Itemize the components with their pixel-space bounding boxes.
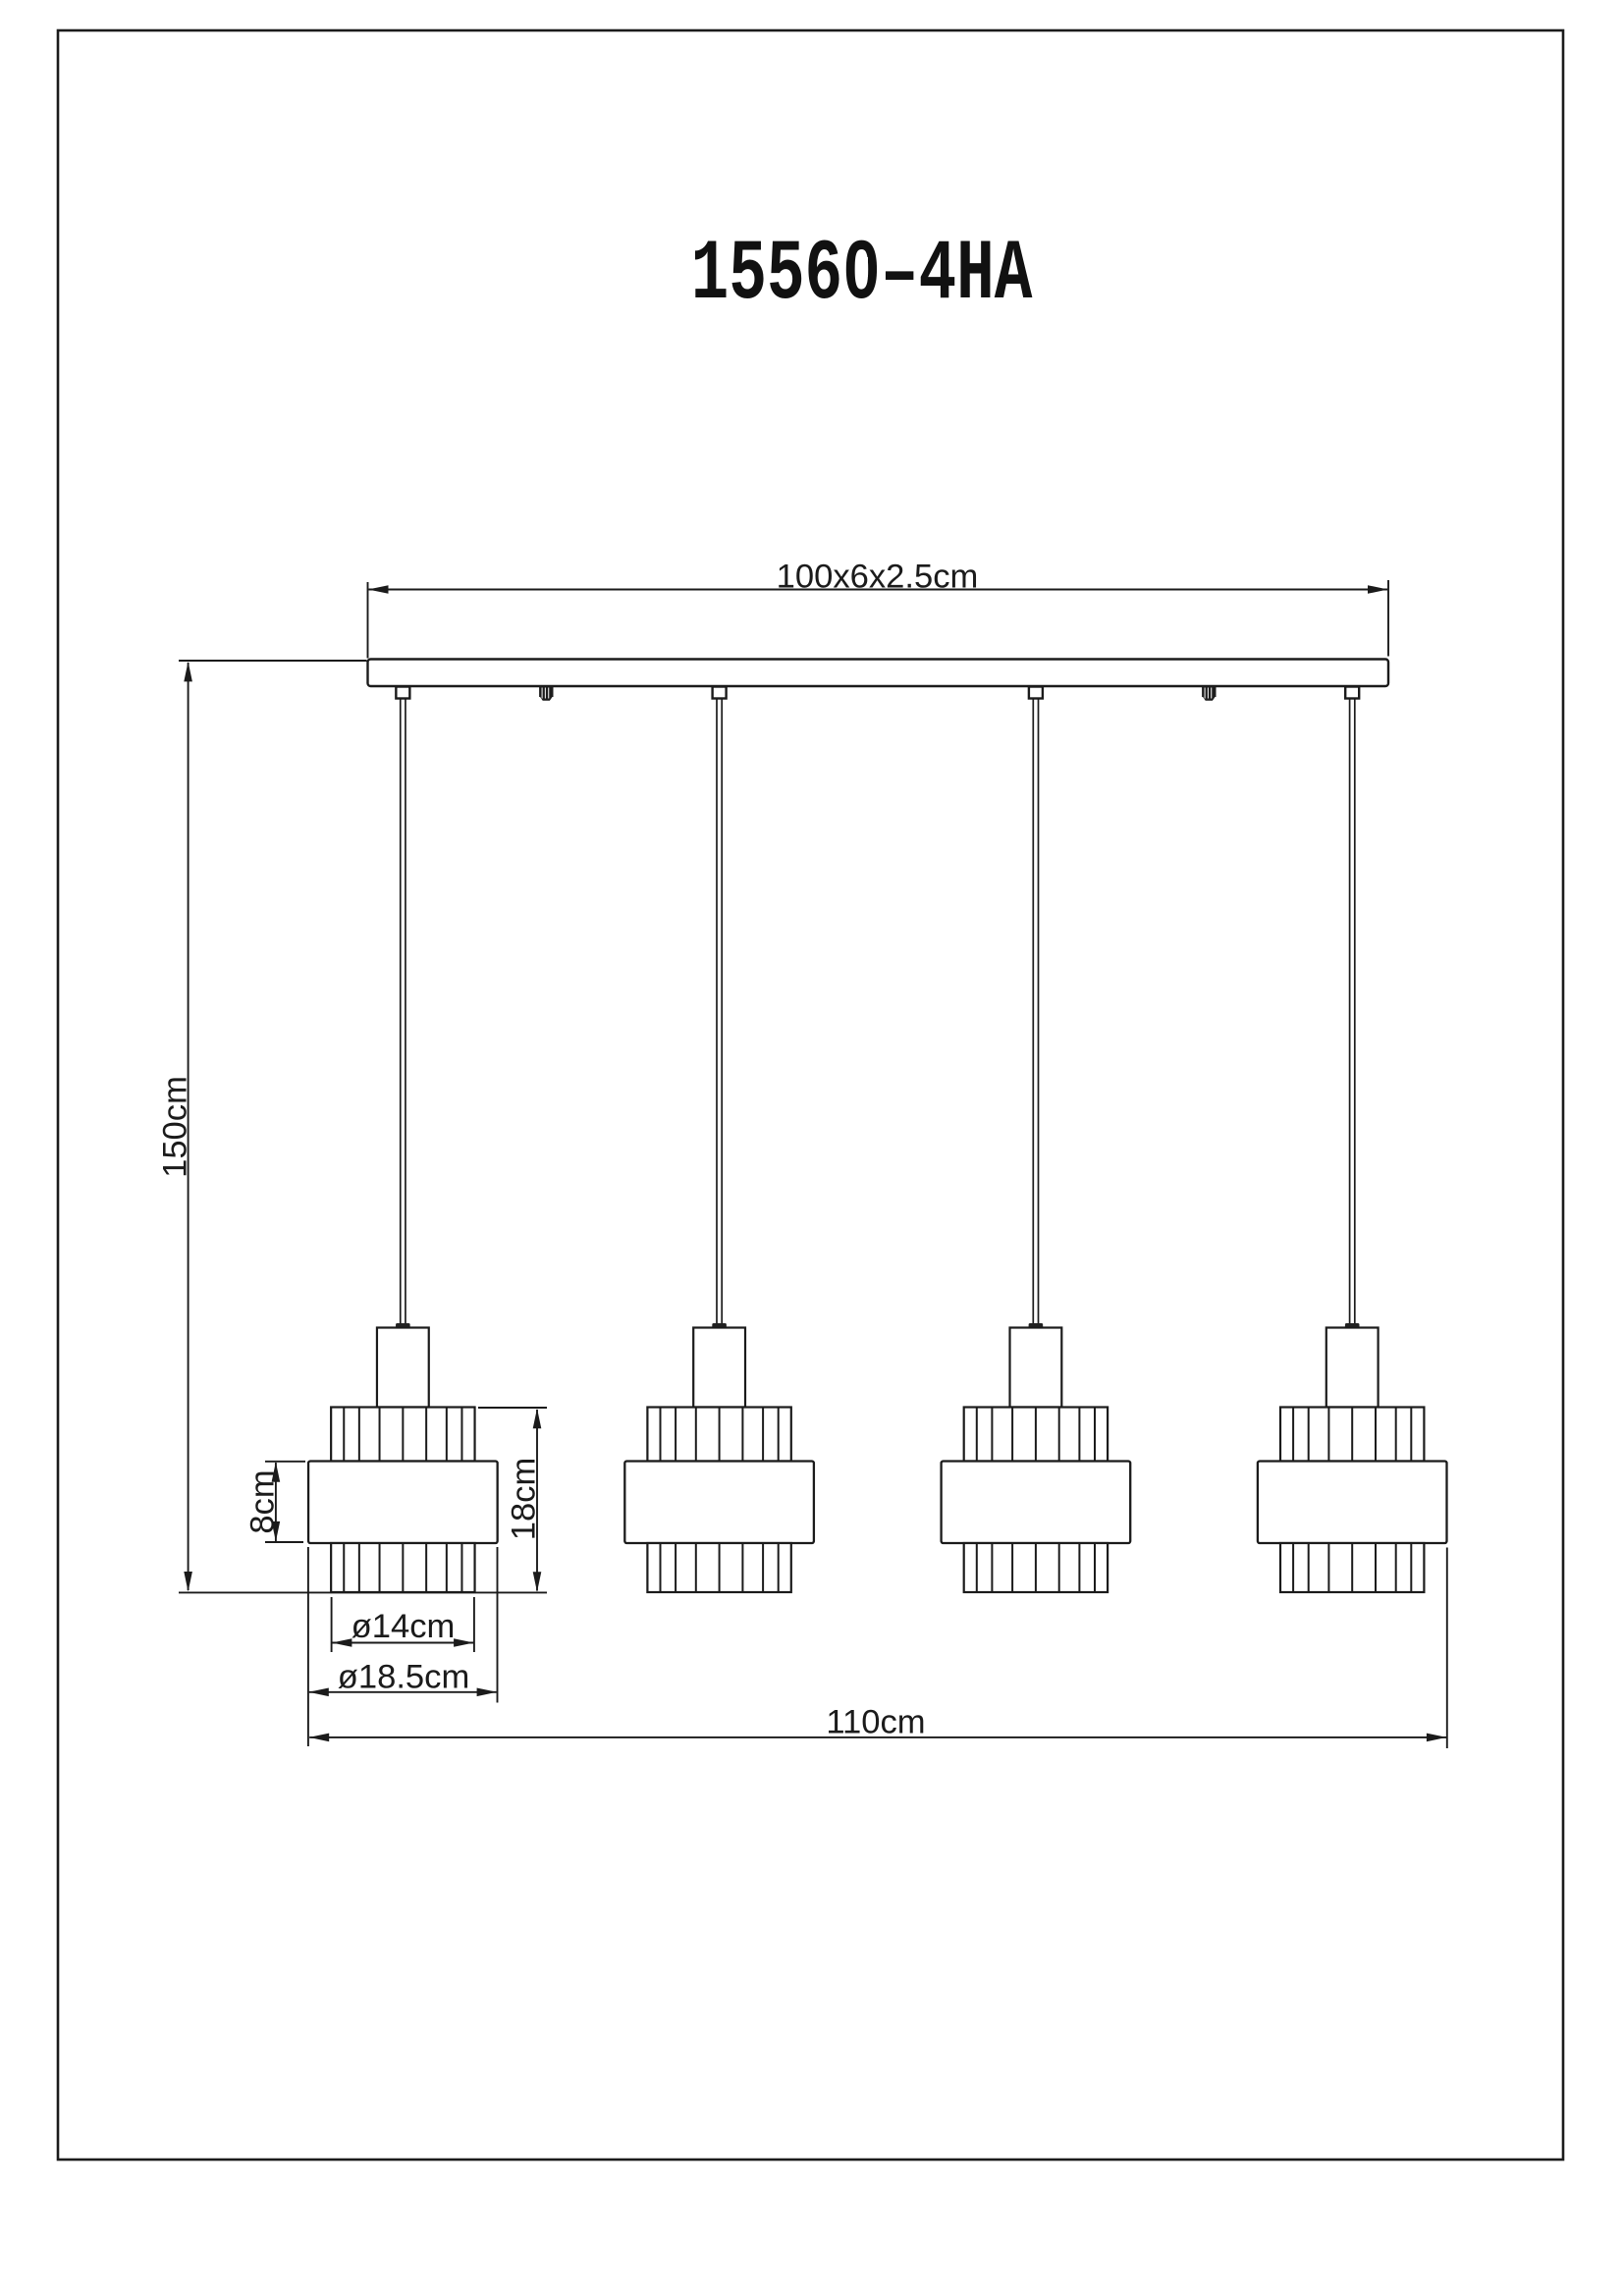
svg-text:ø18.5cm: ø18.5cm — [338, 1659, 470, 1696]
svg-text:18cm: 18cm — [506, 1458, 543, 1541]
svg-text:110cm: 110cm — [826, 1704, 925, 1741]
svg-text:8cm: 8cm — [244, 1469, 282, 1533]
svg-text:100x6x2.5cm: 100x6x2.5cm — [777, 559, 979, 596]
svg-text:ø14cm: ø14cm — [352, 1608, 456, 1645]
svg-text:150cm: 150cm — [157, 1076, 194, 1178]
